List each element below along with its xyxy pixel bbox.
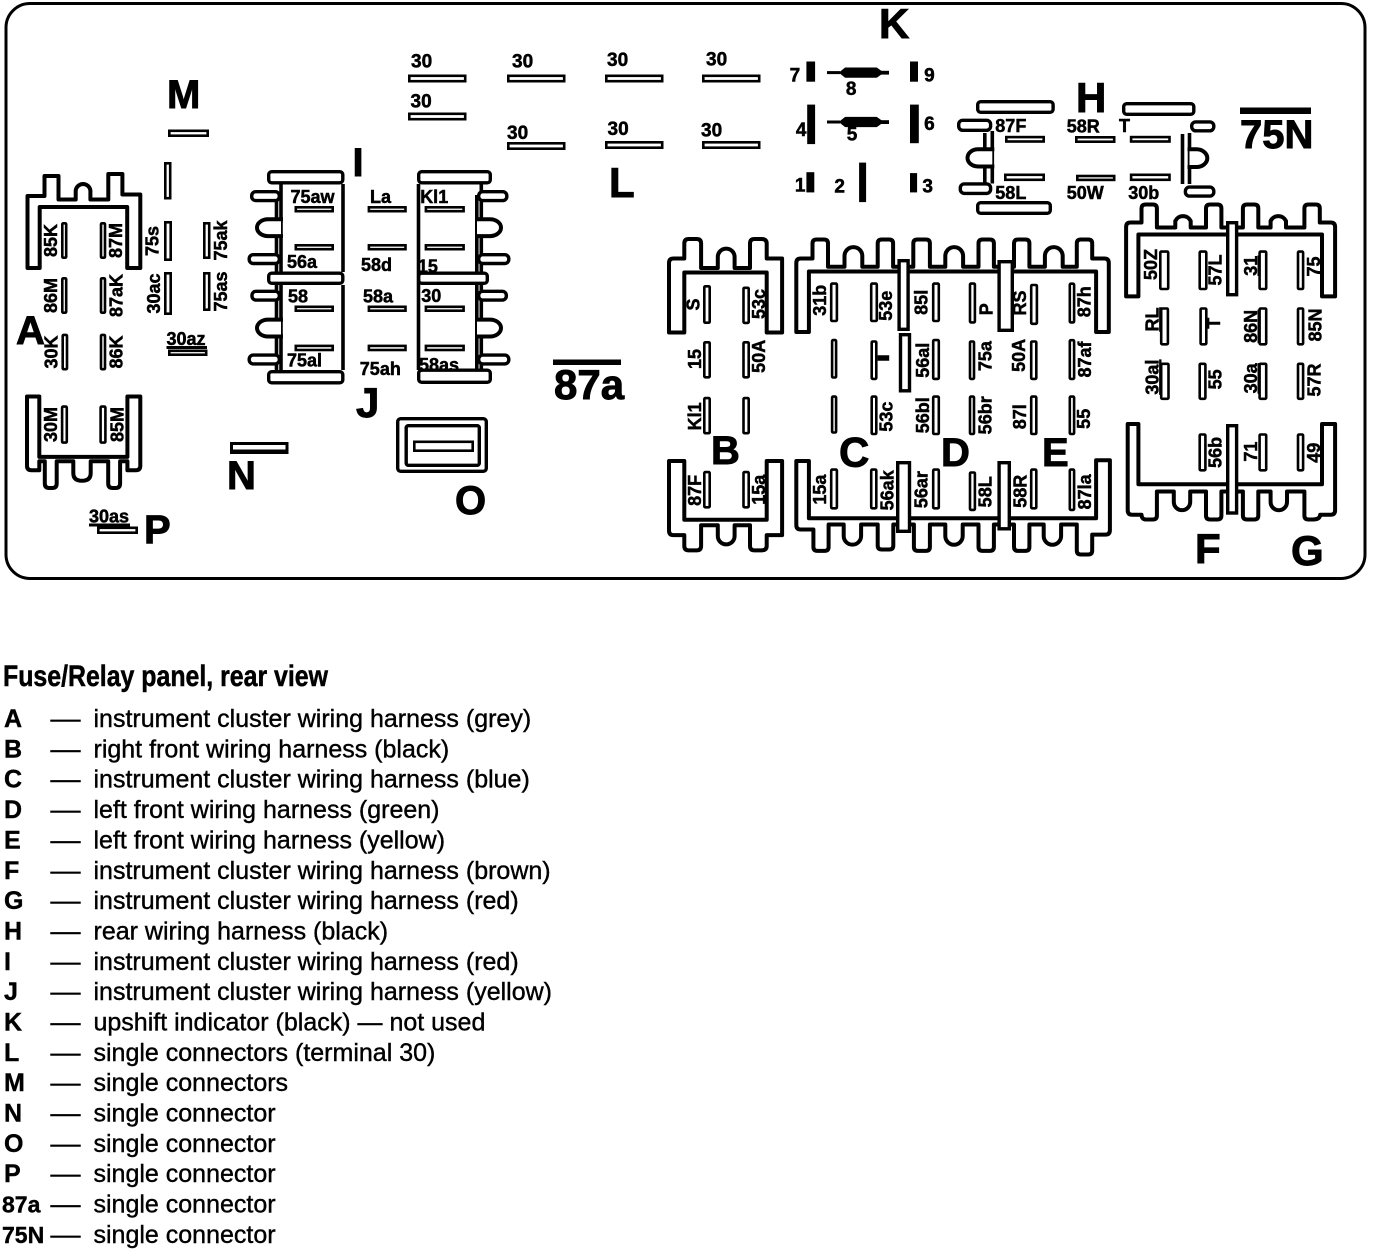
svg-text:F: F xyxy=(1195,525,1221,572)
svg-text:75N: 75N xyxy=(2,1222,44,1248)
svg-text:F: F xyxy=(4,857,19,885)
svg-text:M: M xyxy=(4,1069,25,1097)
svg-text:—: — xyxy=(51,1009,81,1037)
svg-text:P: P xyxy=(4,1160,21,1188)
svg-text:53c: 53c xyxy=(877,402,897,432)
svg-text:87l: 87l xyxy=(1010,404,1030,429)
svg-text:instrument cluster wiring harn: instrument cluster wiring harness (red) xyxy=(94,948,519,976)
svg-text:75al: 75al xyxy=(287,351,322,371)
svg-text:6: 6 xyxy=(924,114,935,135)
svg-text:left front wiring harness (yel: left front wiring harness (yellow) xyxy=(94,826,446,854)
svg-text:87a: 87a xyxy=(554,361,625,408)
svg-text:—: — xyxy=(51,887,81,915)
svg-text:31b: 31b xyxy=(810,285,830,316)
svg-text:single connector: single connector xyxy=(94,1221,276,1249)
svg-text:—: — xyxy=(51,1160,81,1188)
svg-text:P: P xyxy=(144,508,171,552)
svg-text:87F: 87F xyxy=(685,475,705,506)
svg-text:75aw: 75aw xyxy=(291,187,336,207)
svg-text:I: I xyxy=(353,141,364,185)
svg-text:O: O xyxy=(4,1130,23,1158)
svg-text:71: 71 xyxy=(1241,442,1261,462)
svg-text:30: 30 xyxy=(701,120,722,141)
svg-text:D: D xyxy=(941,431,970,475)
svg-text:B: B xyxy=(4,735,22,763)
svg-text:—: — xyxy=(51,1069,81,1097)
svg-text:57R: 57R xyxy=(1304,363,1324,396)
svg-text:30: 30 xyxy=(607,50,628,71)
svg-text:instrument cluster wiring harn: instrument cluster wiring harness (red) xyxy=(94,887,519,915)
svg-text:30: 30 xyxy=(411,92,432,113)
svg-text:58R: 58R xyxy=(1067,117,1100,137)
svg-text:56ak: 56ak xyxy=(877,469,897,510)
svg-text:—: — xyxy=(51,857,81,885)
svg-text:86K: 86K xyxy=(106,335,126,368)
svg-text:—: — xyxy=(51,1039,81,1067)
svg-text:2: 2 xyxy=(834,176,845,197)
svg-text:N: N xyxy=(4,1100,22,1128)
svg-text:58as: 58as xyxy=(419,355,459,375)
svg-text:57L: 57L xyxy=(1205,254,1225,285)
svg-text:L: L xyxy=(609,159,635,206)
svg-text:87la: 87la xyxy=(1075,473,1095,509)
svg-text:75: 75 xyxy=(1304,256,1324,276)
svg-text:75N: 75N xyxy=(1240,113,1313,157)
svg-text:55: 55 xyxy=(1074,409,1094,429)
svg-text:30al: 30al xyxy=(1142,360,1162,395)
svg-text:RL: RL xyxy=(1142,308,1162,332)
svg-text:87aK: 87aK xyxy=(106,274,126,317)
svg-text:58: 58 xyxy=(288,287,308,307)
svg-text:La: La xyxy=(370,187,392,207)
svg-text:30: 30 xyxy=(608,119,629,140)
svg-text:56b: 56b xyxy=(1205,437,1225,468)
svg-text:instrument cluster wiring harn: instrument cluster wiring harness (grey) xyxy=(94,705,532,733)
svg-text:T: T xyxy=(1119,116,1130,136)
svg-text:30: 30 xyxy=(512,51,533,72)
svg-text:—: — xyxy=(51,735,81,763)
svg-text:30: 30 xyxy=(421,286,441,306)
svg-text:L: L xyxy=(4,1039,19,1067)
svg-text:50W: 50W xyxy=(1067,183,1104,203)
svg-text:58R: 58R xyxy=(1011,475,1031,508)
svg-text:50Z: 50Z xyxy=(1141,249,1161,280)
svg-text:A: A xyxy=(4,705,22,733)
svg-text:1: 1 xyxy=(795,176,806,197)
svg-text:D: D xyxy=(4,796,22,824)
svg-text:right front wiring harness (bl: right front wiring harness (black) xyxy=(94,735,450,763)
svg-text:—: — xyxy=(51,1191,81,1219)
svg-text:3: 3 xyxy=(922,176,933,197)
svg-text:5: 5 xyxy=(847,125,858,146)
svg-text:8: 8 xyxy=(846,79,857,100)
svg-text:—: — xyxy=(51,826,81,854)
svg-text:50A: 50A xyxy=(1009,339,1029,372)
svg-text:75ak: 75ak xyxy=(211,219,231,260)
svg-text:instrument cluster wiring harn: instrument cluster wiring harness (brown… xyxy=(94,857,551,885)
svg-text:—: — xyxy=(51,705,81,733)
svg-text:G: G xyxy=(4,887,23,915)
svg-text:56ar: 56ar xyxy=(912,471,932,508)
svg-text:single connector: single connector xyxy=(94,1130,276,1158)
svg-text:instrument cluster wiring harn: instrument cluster wiring harness (blue) xyxy=(94,766,530,794)
svg-text:N: N xyxy=(227,454,256,498)
svg-text:H: H xyxy=(4,918,22,946)
svg-text:49: 49 xyxy=(1304,443,1324,463)
svg-text:87h: 87h xyxy=(1075,286,1095,317)
svg-text:4: 4 xyxy=(796,120,807,141)
svg-text:J: J xyxy=(4,978,18,1006)
svg-text:O: O xyxy=(455,479,486,523)
svg-text:J: J xyxy=(356,379,379,426)
svg-text:85N: 85N xyxy=(1305,308,1325,341)
svg-text:single connectors: single connectors xyxy=(94,1069,289,1097)
svg-text:86M: 86M xyxy=(41,278,61,313)
svg-text:single connector: single connector xyxy=(94,1191,276,1219)
svg-text:left front wiring harness (gre: left front wiring harness (green) xyxy=(94,796,440,824)
svg-text:87af: 87af xyxy=(1075,340,1095,377)
svg-text:53e: 53e xyxy=(876,291,896,321)
svg-text:87F: 87F xyxy=(995,116,1026,136)
svg-text:30M: 30M xyxy=(41,407,61,442)
svg-text:15: 15 xyxy=(685,349,705,369)
svg-text:single connector: single connector xyxy=(94,1160,276,1188)
svg-text:—: — xyxy=(51,1130,81,1158)
svg-text:I: I xyxy=(4,948,11,976)
svg-text:56a: 56a xyxy=(287,252,318,272)
svg-text:M: M xyxy=(167,73,200,117)
svg-text:B: B xyxy=(711,429,740,473)
svg-text:G: G xyxy=(1291,527,1324,574)
svg-text:C: C xyxy=(839,429,869,476)
svg-text:upshift indicator (black) — no: upshift indicator (black) — not used xyxy=(94,1009,486,1037)
svg-text:—: — xyxy=(51,918,81,946)
svg-text:K: K xyxy=(4,1009,22,1037)
svg-text:31: 31 xyxy=(1241,256,1261,276)
svg-text:A: A xyxy=(16,309,45,353)
svg-text:Kl1: Kl1 xyxy=(685,402,705,430)
svg-text:H: H xyxy=(1076,74,1106,121)
svg-text:56bl: 56bl xyxy=(913,397,933,433)
svg-text:30a: 30a xyxy=(1241,362,1261,393)
svg-text:rear wiring harness (black): rear wiring harness (black) xyxy=(94,918,389,946)
svg-text:30: 30 xyxy=(411,51,432,72)
svg-text:56al: 56al xyxy=(913,343,933,378)
svg-text:single connector: single connector xyxy=(94,1100,276,1128)
svg-text:30b: 30b xyxy=(1128,183,1159,203)
svg-text:single connectors (terminal 30: single connectors (terminal 30) xyxy=(94,1039,436,1067)
svg-text:85l: 85l xyxy=(912,290,932,315)
svg-text:15: 15 xyxy=(418,257,438,277)
svg-text:58d: 58d xyxy=(361,255,392,275)
svg-text:75as: 75as xyxy=(211,271,231,311)
svg-text:85K: 85K xyxy=(41,224,61,257)
svg-text:—: — xyxy=(51,1221,81,1249)
svg-text:87a: 87a xyxy=(2,1192,41,1218)
svg-text:Kl1: Kl1 xyxy=(420,187,448,207)
svg-text:50A: 50A xyxy=(749,340,769,373)
svg-text:56br: 56br xyxy=(975,396,995,434)
svg-text:86N: 86N xyxy=(1241,310,1261,343)
svg-text:K: K xyxy=(879,0,909,47)
svg-text:—: — xyxy=(51,1100,81,1128)
svg-text:—: — xyxy=(51,796,81,824)
svg-text:30: 30 xyxy=(507,123,528,144)
svg-text:58L: 58L xyxy=(995,183,1026,203)
svg-text:75a: 75a xyxy=(975,340,995,371)
svg-text:—: — xyxy=(51,978,81,1006)
svg-text:55: 55 xyxy=(1205,369,1225,389)
svg-text:9: 9 xyxy=(924,66,935,87)
svg-text:75ah: 75ah xyxy=(360,359,401,379)
svg-text:instrument cluster wiring harn: instrument cluster wiring harness (yello… xyxy=(94,978,552,1006)
svg-text:58a: 58a xyxy=(363,287,394,307)
svg-text:C: C xyxy=(4,766,22,794)
svg-text:87M: 87M xyxy=(106,223,126,258)
svg-text:53c: 53c xyxy=(749,289,769,319)
svg-text:T: T xyxy=(1204,318,1224,329)
svg-text:30: 30 xyxy=(706,49,727,70)
svg-text:7: 7 xyxy=(790,66,801,87)
svg-text:Fuse/Relay panel, rear view: Fuse/Relay panel, rear view xyxy=(3,660,329,693)
svg-text:E: E xyxy=(1042,431,1069,475)
svg-text:—: — xyxy=(51,948,81,976)
svg-text:30ac: 30ac xyxy=(144,273,164,313)
svg-text:E: E xyxy=(4,826,21,854)
svg-text:S: S xyxy=(684,298,704,310)
svg-text:RS: RS xyxy=(1010,290,1030,315)
svg-text:58L: 58L xyxy=(975,476,995,507)
svg-text:85M: 85M xyxy=(107,407,127,442)
svg-text:75s: 75s xyxy=(143,226,163,256)
svg-text:15a: 15a xyxy=(749,474,769,505)
svg-text:P: P xyxy=(977,303,997,315)
svg-text:15a: 15a xyxy=(810,474,830,505)
svg-text:—: — xyxy=(51,766,81,794)
